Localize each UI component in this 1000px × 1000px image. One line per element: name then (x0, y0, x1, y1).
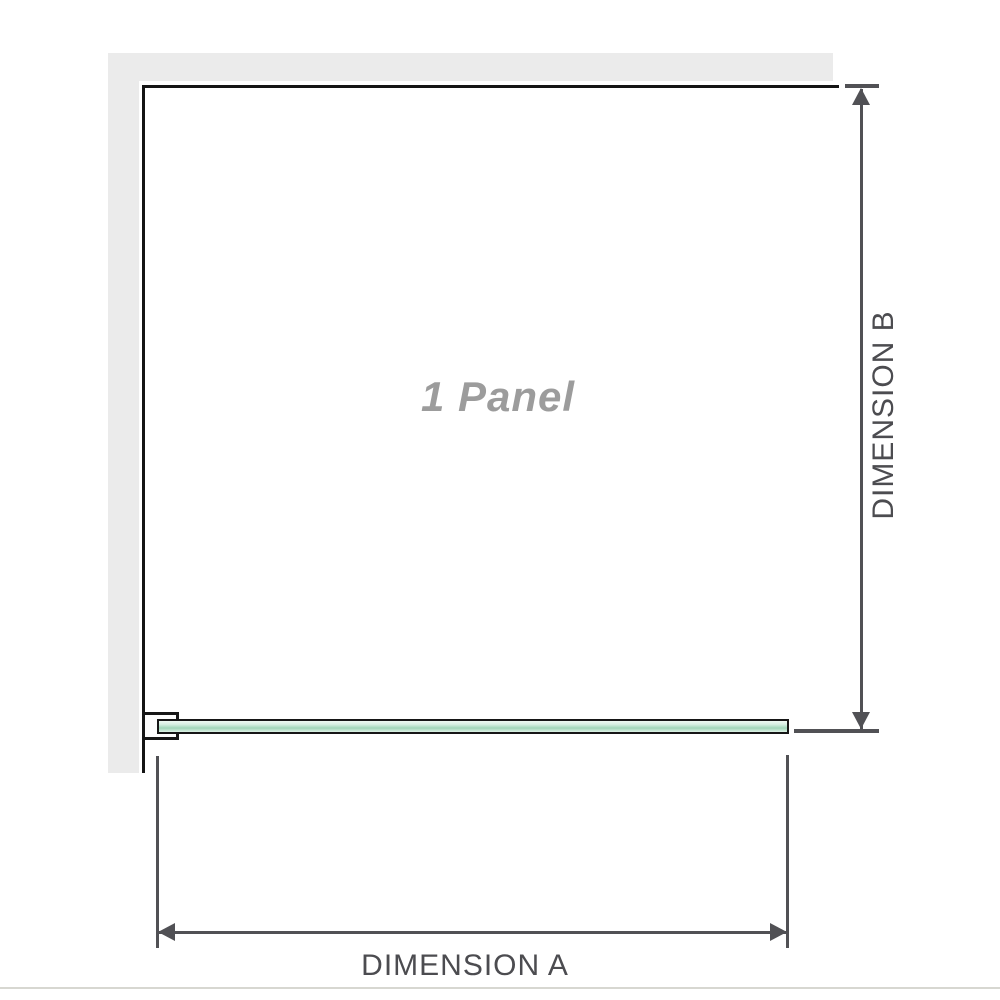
dimension-b-line (860, 89, 863, 729)
dimension-a-line (158, 931, 787, 934)
dimension-b-bottom-tick (794, 729, 879, 733)
glass-panel (157, 719, 789, 734)
dimension-a-label: DIMENSION A (361, 949, 569, 983)
dimension-b-label: DIMENSION B (867, 310, 901, 519)
panel-count-label: 1 Panel (421, 373, 575, 421)
panel-frame-left-edge (142, 85, 145, 773)
baseline-divider (0, 987, 1000, 989)
wall-left-strip (108, 53, 139, 773)
arrow-left-icon (158, 923, 175, 941)
shower-panel-dimension-diagram: 1 Panel DIMENSION B DIMENSION A (0, 0, 1000, 1000)
dimension-a-left-extension (156, 756, 159, 948)
arrow-down-icon (852, 712, 870, 729)
panel-frame-top-edge (142, 85, 839, 88)
dimension-a-right-extension (786, 755, 789, 948)
arrow-right-icon (770, 923, 787, 941)
arrow-up-icon (852, 88, 870, 105)
wall-top-strip (108, 53, 833, 81)
